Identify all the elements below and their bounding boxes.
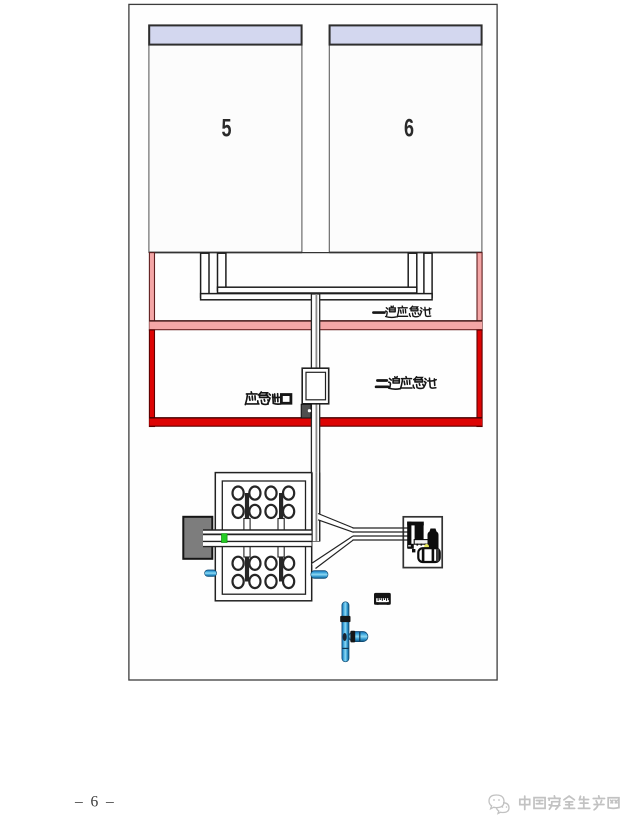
svg-text:–: – bbox=[74, 794, 83, 811]
svg-text:6: 6 bbox=[404, 115, 414, 143]
svg-text:–: – bbox=[105, 794, 114, 811]
svg-text:6: 6 bbox=[91, 794, 99, 811]
svg-text:5: 5 bbox=[222, 115, 232, 143]
